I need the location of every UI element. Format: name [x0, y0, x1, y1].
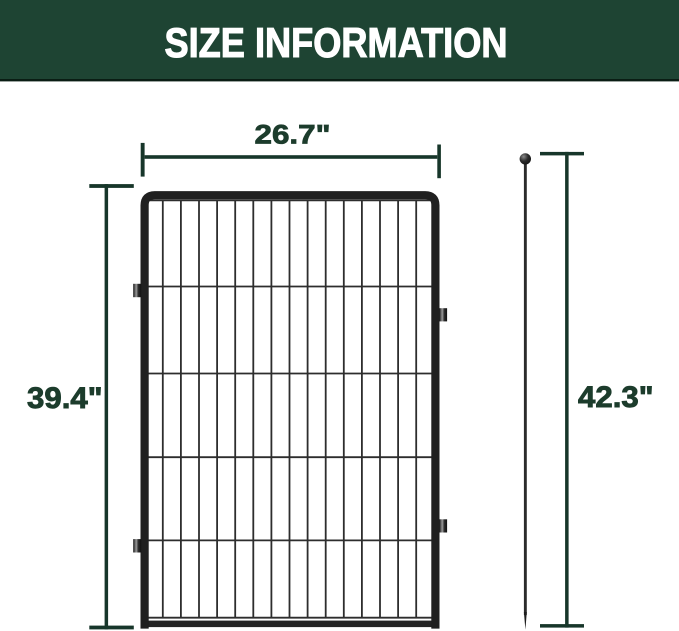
- svg-text:42.3": 42.3": [578, 381, 654, 414]
- svg-text:26.7": 26.7": [255, 120, 331, 150]
- svg-text:39.4": 39.4": [27, 382, 103, 415]
- svg-text:SIZE INFORMATION: SIZE INFORMATION: [165, 19, 508, 66]
